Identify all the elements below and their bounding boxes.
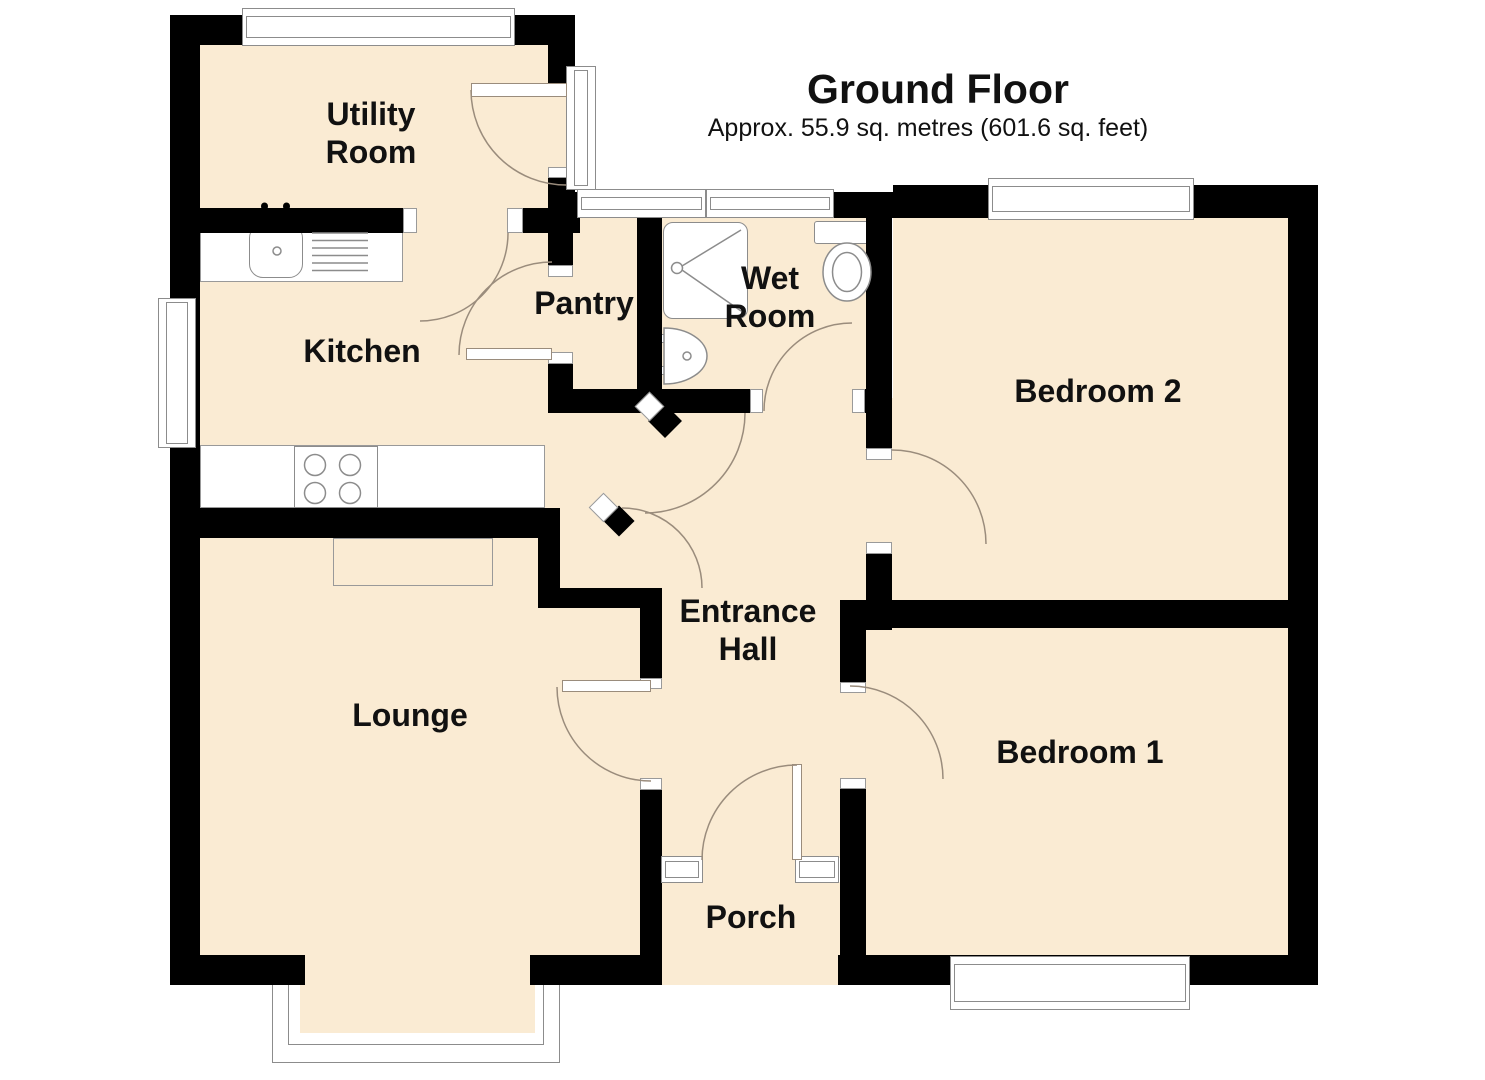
- bay-window-floor: [300, 955, 535, 1033]
- kitchen-window: [158, 298, 196, 448]
- utility-window: [242, 8, 515, 46]
- pantry-door-leaf: [466, 348, 552, 360]
- bedroom-2-window: [988, 178, 1194, 220]
- porch-sidelight-left: [661, 856, 703, 883]
- wall-pantry-left-upper: [548, 233, 573, 265]
- lounge-door-leaf: [562, 680, 651, 692]
- page-title: Ground Floor: [807, 66, 1069, 113]
- jamb: [852, 389, 865, 413]
- front-door-gap-floor: [700, 858, 800, 882]
- utility-exterior-door-leaf: [471, 83, 567, 97]
- hearth: [333, 538, 493, 586]
- wall-kitchen-se-vertical: [538, 508, 560, 590]
- jamb: [840, 778, 866, 789]
- room-label-lounge: Lounge: [352, 696, 468, 734]
- jamb: [840, 682, 866, 693]
- room-label-wet-room: WetRoom: [725, 259, 816, 335]
- jamb: [640, 778, 662, 790]
- utility-exterior-door-panel: [566, 66, 596, 190]
- bedroom-1-window: [950, 956, 1190, 1010]
- wall-utility-kitchen: [170, 208, 403, 233]
- room-label-entrance-hall: EntranceHall: [680, 592, 817, 668]
- wall-top-window-right: [833, 192, 893, 218]
- room-label-pantry: Pantry: [534, 284, 634, 322]
- floor-plan: Ground Floor Approx. 55.9 sq. metres (60…: [0, 0, 1485, 1080]
- wall-pantry-left-lower: [548, 364, 573, 389]
- porch-sidelight-right: [795, 856, 839, 883]
- page-subtitle: Approx. 55.9 sq. metres (601.6 sq. feet): [708, 114, 1149, 143]
- wall-lounge-bottom-right: [530, 955, 662, 985]
- wall-top-window-left: [548, 192, 578, 218]
- wall-hall-south: [538, 588, 662, 608]
- jamb: [750, 389, 763, 413]
- jamb: [548, 265, 573, 277]
- room-label-porch: Porch: [706, 898, 797, 936]
- jamb: [507, 208, 523, 233]
- wall-right-outer: [1288, 185, 1318, 985]
- wall-pantry-wetroom: [637, 218, 662, 389]
- room-label-bedroom-1: Bedroom 1: [996, 733, 1163, 771]
- wall-left-outer: [170, 15, 200, 985]
- wall-bedroom1-left-upper: [840, 600, 866, 682]
- wall-wetroom-bottom-left: [662, 389, 750, 413]
- wall-east-center-upper: [866, 218, 892, 448]
- room-label-kitchen: Kitchen: [303, 332, 420, 370]
- jamb: [403, 208, 417, 233]
- wall-lounge-bottom-left: [170, 955, 305, 985]
- wall-bedroom-divider: [848, 600, 1318, 628]
- jamb: [866, 448, 892, 460]
- room-label-bedroom-2: Bedroom 2: [1014, 372, 1181, 410]
- jamb: [866, 542, 892, 554]
- wet-room-window: [706, 189, 834, 218]
- hob: [294, 446, 378, 508]
- pantry-window: [577, 189, 706, 218]
- wall-lounge-east: [640, 608, 662, 678]
- front-door-leaf: [792, 764, 802, 860]
- room-label-utility-room: UtilityRoom: [326, 95, 417, 171]
- wall-kitchen-lounge: [170, 508, 560, 538]
- bedroom-1-floor: [866, 628, 1288, 955]
